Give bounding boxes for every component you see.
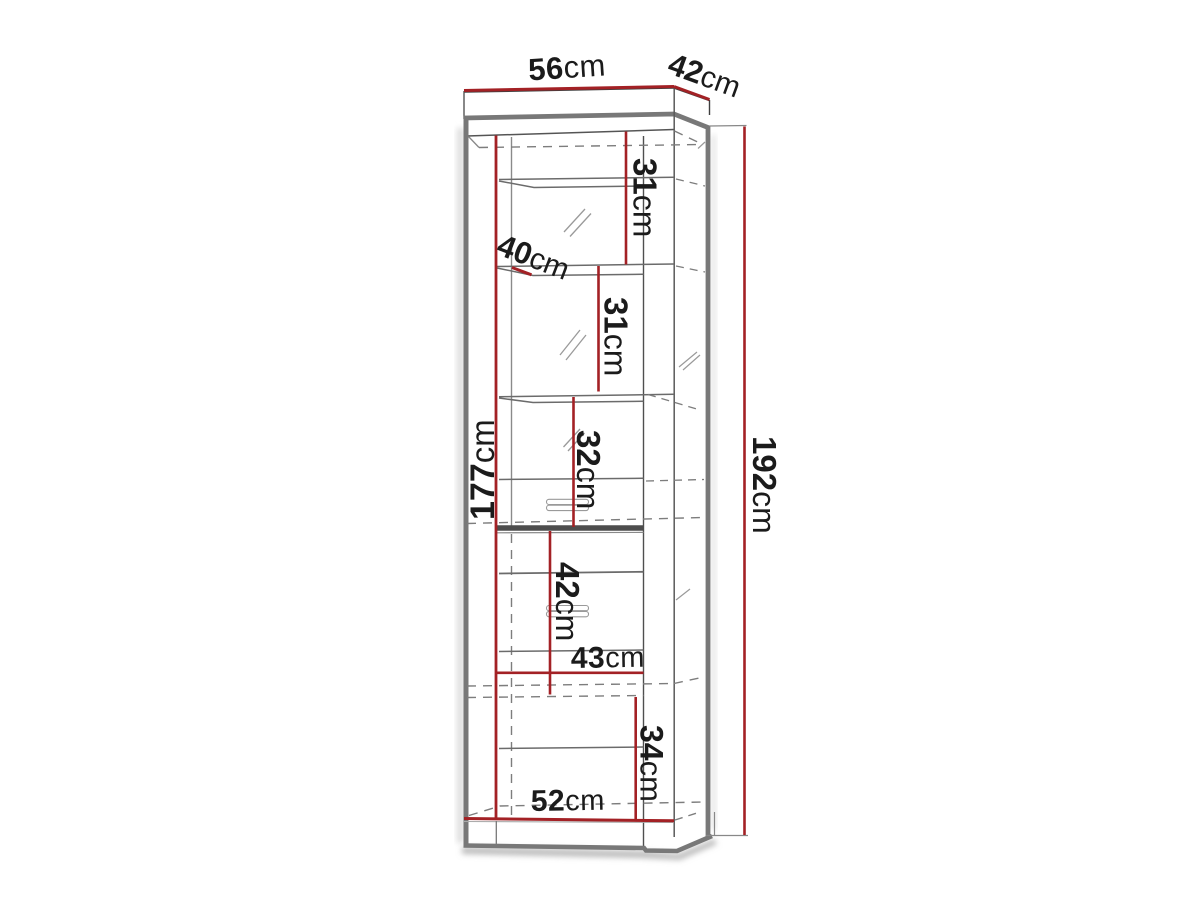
svg-text:34cm: 34cm [634, 725, 670, 802]
svg-text:31cm: 31cm [627, 158, 664, 237]
svg-text:42cm: 42cm [549, 562, 586, 641]
svg-text:192cm: 192cm [746, 436, 783, 534]
svg-text:32cm: 32cm [570, 430, 607, 509]
svg-text:52cm: 52cm [531, 784, 606, 818]
svg-text:177cm: 177cm [464, 419, 502, 520]
svg-text:31cm: 31cm [598, 297, 635, 376]
svg-text:56cm: 56cm [527, 47, 607, 87]
svg-text:43cm: 43cm [571, 641, 646, 675]
